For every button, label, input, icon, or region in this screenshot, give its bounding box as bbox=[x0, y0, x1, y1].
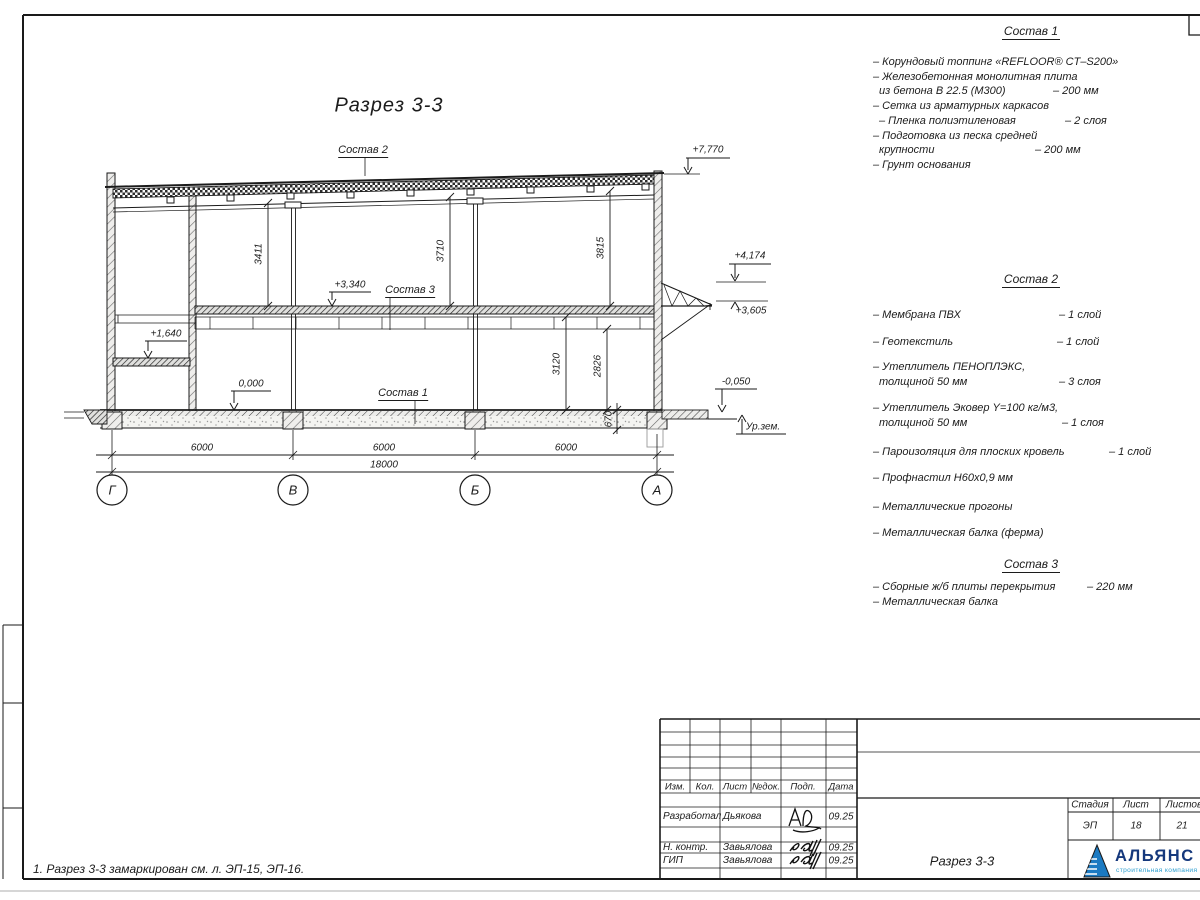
tb-sheet-value: 18 bbox=[1130, 821, 1141, 832]
mezzanine-slab bbox=[113, 358, 190, 366]
tb-sheets-label: Листов bbox=[1166, 800, 1200, 811]
apron-slab bbox=[662, 410, 708, 419]
axis-v: В bbox=[289, 483, 298, 498]
dim-670: 670 bbox=[604, 411, 615, 428]
tb-name-2: Завьялова bbox=[723, 842, 772, 853]
dim-3411: 3411 bbox=[254, 243, 265, 265]
list-item: – Металлическая балка bbox=[873, 596, 1200, 608]
tb-role-3: ГИП bbox=[663, 855, 683, 866]
level-3605: +3,605 bbox=[736, 306, 767, 317]
level-reference-lines bbox=[664, 174, 768, 301]
tb-sheets-value: 21 bbox=[1176, 821, 1187, 832]
list-item: – Подготовка из песка средней bbox=[873, 130, 1200, 142]
tb-header-list: Лист bbox=[723, 782, 747, 793]
tb-date-2: 09.25 bbox=[828, 843, 853, 854]
level-7770: +7,770 bbox=[693, 145, 724, 156]
tb-role-1: Разработал bbox=[663, 811, 721, 822]
list-item: – Геотекстиль– 1 слой bbox=[873, 336, 1200, 348]
ground-slab bbox=[64, 410, 737, 447]
list-item: – Сетка из арматурных каркасов bbox=[873, 100, 1200, 112]
left-wall bbox=[107, 173, 115, 412]
label-sostav2: Состав 2 bbox=[338, 144, 388, 158]
interior-wall bbox=[189, 196, 196, 412]
list-item: – Профнастил Н60х0,9 мм bbox=[873, 472, 1200, 484]
list-item: – Металлическая балка (ферма) bbox=[873, 527, 1200, 539]
entrance-ramp bbox=[84, 410, 107, 424]
composition-2-heading: Состав 2 bbox=[870, 270, 1192, 288]
drawing-sheet: Разрез 3-3 Состав 2 Состав 3 Состав 1 +7… bbox=[0, 0, 1200, 900]
axis-g: Г bbox=[108, 483, 115, 498]
list-item: – Сборные ж/б плиты перекрытия– 220 мм bbox=[873, 581, 1200, 593]
list-item: из бетона В 22.5 (М300)– 200 мм bbox=[873, 85, 1200, 97]
dim-6000-1: 6000 bbox=[191, 443, 213, 454]
level-3340: +3,340 bbox=[335, 280, 366, 291]
sheet-note: 1. Разрез 3-3 замаркирован см. л. ЭП-15,… bbox=[33, 862, 304, 876]
label-sostav3: Состав 3 bbox=[385, 284, 435, 298]
roof-insulation-band bbox=[113, 175, 654, 198]
tb-date-3: 09.25 bbox=[828, 856, 853, 867]
list-item: – Грунт основания bbox=[873, 159, 1200, 171]
composition-3-heading: Состав 3 bbox=[870, 555, 1192, 573]
dim-6000-3: 6000 bbox=[555, 443, 577, 454]
axis-a: А bbox=[653, 483, 662, 498]
columns bbox=[285, 198, 483, 410]
label-sostav1: Состав 1 bbox=[378, 387, 428, 401]
axis-b: Б bbox=[471, 483, 479, 498]
view-title: Разрез 3-3 bbox=[334, 95, 443, 118]
level-m050: -0,050 bbox=[722, 377, 750, 388]
dim-3815: 3815 bbox=[596, 237, 607, 259]
list-item: – Корундовый топпинг «REFLOOR® CT–S200» bbox=[873, 56, 1200, 68]
tb-doc-title: Разрез 3-3 bbox=[930, 854, 994, 869]
list-item: – Пленка полиэтиленовая– 2 слоя bbox=[873, 115, 1200, 127]
logo-icon bbox=[1084, 845, 1110, 877]
tb-name-1: Дьякова bbox=[723, 811, 762, 822]
list-item: – Утеплитель Эковер Y=100 кг/м3, bbox=[873, 402, 1200, 414]
dim-18000: 18000 bbox=[370, 460, 398, 471]
tb-stage-label: Стадия bbox=[1071, 800, 1108, 811]
logo-tagline: строительная компания bbox=[1116, 867, 1197, 874]
tb-stage-value: ЭП bbox=[1083, 821, 1097, 832]
list-item: – Мембрана ПВХ– 1 слой bbox=[873, 309, 1200, 321]
tb-sheet-label: Лист bbox=[1123, 800, 1149, 811]
tb-header-izm: Изм. bbox=[665, 782, 685, 793]
tb-role-2: Н. контр. bbox=[663, 842, 708, 853]
tb-header-data: Дата bbox=[828, 782, 853, 793]
tb-header-kol: Кол. bbox=[696, 782, 715, 793]
list-item: крупности– 200 мм bbox=[873, 144, 1200, 156]
logo-name: АЛЬЯНС bbox=[1115, 847, 1195, 866]
ground-level-label: Ур.зем. bbox=[746, 422, 780, 433]
level-0000: 0,000 bbox=[238, 379, 263, 390]
composition-1-heading: Состав 1 bbox=[870, 22, 1192, 40]
dim-3710: 3710 bbox=[436, 240, 447, 262]
tb-header-podp: Подп. bbox=[790, 782, 815, 793]
left-margin-boxes bbox=[3, 625, 23, 879]
tb-date-1: 09.25 bbox=[828, 812, 853, 823]
tb-name-3: Завьялова bbox=[723, 855, 772, 866]
list-item: – Железобетонная монолитная плита bbox=[873, 71, 1200, 83]
level-1640: +1,640 bbox=[151, 329, 182, 340]
list-item: – Утеплитель ПЕНОПЛЭКС, bbox=[873, 361, 1200, 373]
list-item: – Металлические прогоны bbox=[873, 501, 1200, 513]
right-wall bbox=[654, 171, 662, 412]
dim-2826: 2826 bbox=[593, 355, 604, 377]
list-item: толщиной 50 мм– 1 слоя bbox=[873, 417, 1200, 429]
dim-6000-2: 6000 bbox=[373, 443, 395, 454]
tb-header-ndok: №док. bbox=[752, 782, 780, 793]
signatures bbox=[789, 809, 821, 869]
list-item: толщиной 50 мм– 3 слоя bbox=[873, 376, 1200, 388]
dim-3120: 3120 bbox=[552, 353, 563, 375]
list-item: – Пароизоляция для плоских кровель– 1 сл… bbox=[873, 446, 1200, 458]
level-4174: +4,174 bbox=[735, 251, 766, 262]
canopy-truss bbox=[661, 283, 712, 340]
